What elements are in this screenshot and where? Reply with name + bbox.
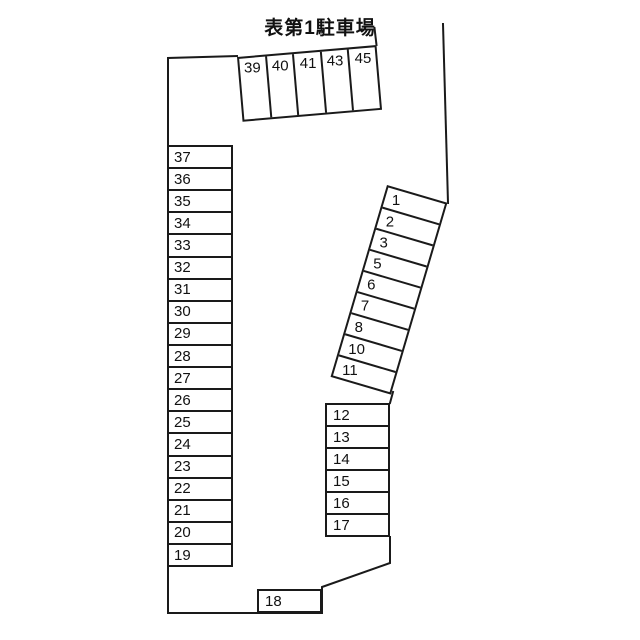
space-number: 30: [174, 304, 191, 319]
boundary-right-upper: [443, 24, 448, 203]
space-number: 1: [392, 193, 400, 208]
space-number: 22: [174, 481, 191, 496]
space-number: 18: [265, 594, 282, 609]
space-number: 7: [361, 298, 369, 313]
parking-space: 12: [327, 405, 388, 427]
space-number: 31: [174, 282, 191, 297]
space-number: 19: [174, 548, 191, 563]
parking-space: 34: [169, 213, 231, 235]
parking-space: 37: [169, 147, 231, 169]
space-number: 25: [174, 415, 191, 430]
parking-lot-map: 表第1駐車場 3940414345 3736353433323130292827…: [0, 0, 640, 640]
space-number: 12: [333, 408, 350, 423]
parking-space: 13: [327, 427, 388, 449]
space-number: 10: [348, 342, 365, 357]
parking-row-39-45: 3940414345: [237, 45, 382, 122]
parking-space: 21: [169, 501, 231, 523]
parking-space: 25: [169, 412, 231, 434]
space-number: 32: [174, 260, 191, 275]
parking-space: 19: [169, 545, 231, 565]
space-number: 17: [333, 518, 350, 533]
space-number: 33: [174, 238, 191, 253]
parking-space: 27: [169, 368, 231, 390]
space-number: 2: [386, 214, 394, 229]
space-number: 41: [299, 56, 316, 71]
space-number: 40: [272, 58, 289, 73]
parking-space: 16: [327, 493, 388, 515]
space-number: 11: [342, 363, 358, 378]
space-number: 36: [174, 172, 191, 187]
space-number: 20: [174, 525, 191, 540]
parking-space: 28: [169, 346, 231, 368]
space-number: 27: [174, 371, 191, 386]
space-number: 15: [333, 474, 350, 489]
parking-space: 20: [169, 523, 231, 545]
parking-space: 35: [169, 191, 231, 213]
parking-space: 32: [169, 258, 231, 280]
parking-space: 17: [327, 515, 388, 535]
space-number: 26: [174, 393, 191, 408]
parking-space: 29: [169, 324, 231, 346]
space-number: 6: [367, 277, 375, 292]
space-number: 21: [174, 503, 191, 518]
space-number: 8: [355, 319, 363, 334]
parking-column-12-17: 121314151617: [325, 403, 390, 537]
space-number: 24: [174, 437, 191, 452]
boundary-top-right-stub: [375, 28, 377, 45]
space-number: 43: [327, 54, 344, 69]
parking-space: 22: [169, 479, 231, 501]
parking-space: 26: [169, 390, 231, 412]
parking-space: 31: [169, 280, 231, 302]
space-number: 39: [244, 61, 261, 76]
space-number: 14: [333, 452, 350, 467]
parking-space: 23: [169, 457, 231, 479]
space-number: 29: [174, 326, 191, 341]
parking-space: 30: [169, 302, 231, 324]
space-number: 5: [373, 256, 381, 271]
parking-space: 15: [327, 471, 388, 493]
parking-space-18: 18: [257, 589, 322, 613]
space-number: 34: [174, 216, 191, 231]
parking-column-37-19: 37363534333231302928272625242322212019: [167, 145, 233, 567]
space-number: 35: [174, 194, 191, 209]
parking-space: 33: [169, 235, 231, 257]
space-number: 37: [174, 150, 191, 165]
parking-space: 14: [327, 449, 388, 471]
space-number: 28: [174, 349, 191, 364]
space-number: 45: [354, 51, 371, 66]
parking-space: 45: [349, 47, 380, 110]
space-number: 13: [333, 430, 350, 445]
parking-space: 18: [259, 591, 320, 611]
space-number: 3: [380, 235, 388, 250]
space-number: 23: [174, 459, 191, 474]
space-number: 16: [333, 496, 350, 511]
parking-space: 24: [169, 434, 231, 456]
parking-space: 36: [169, 169, 231, 191]
